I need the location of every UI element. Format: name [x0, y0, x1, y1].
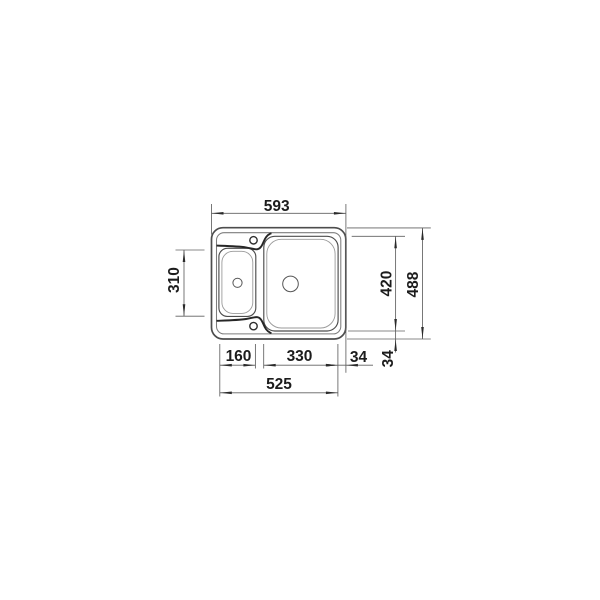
svg-text:420: 420 [379, 271, 396, 297]
svg-text:34: 34 [350, 349, 368, 366]
svg-text:593: 593 [264, 198, 290, 215]
svg-text:488: 488 [405, 271, 422, 297]
svg-text:160: 160 [226, 348, 252, 365]
svg-text:525: 525 [266, 376, 292, 393]
svg-text:310: 310 [166, 267, 183, 293]
svg-text:34: 34 [380, 350, 397, 368]
svg-text:330: 330 [287, 348, 313, 365]
